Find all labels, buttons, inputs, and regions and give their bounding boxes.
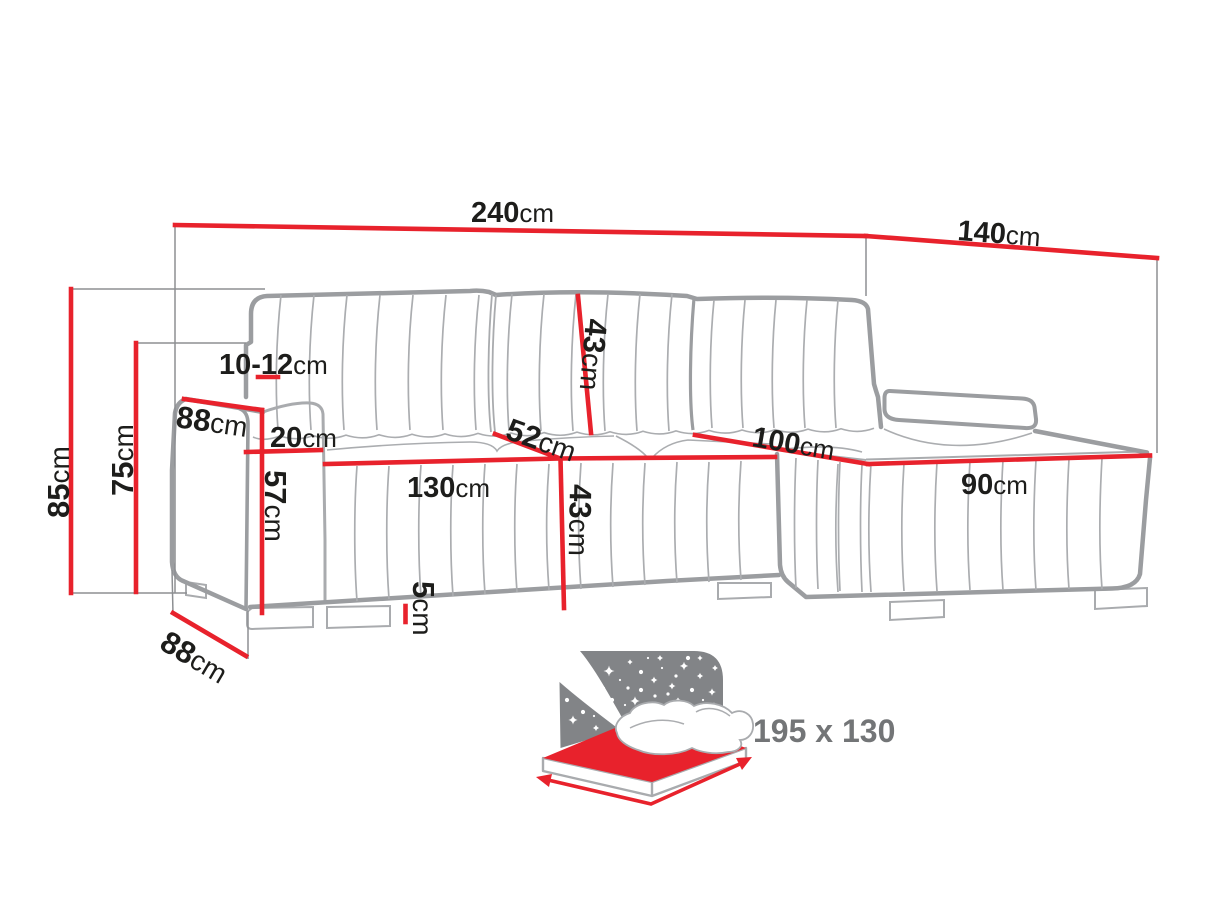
svg-text:43cm: 43cm xyxy=(573,317,614,392)
svg-text:85cm: 85cm xyxy=(41,446,76,518)
svg-text:57cm: 57cm xyxy=(258,470,293,542)
svg-text:10-12cm: 10-12cm xyxy=(219,349,328,381)
svg-text:195 x 130: 195 x 130 xyxy=(753,713,895,749)
svg-text:100cm: 100cm xyxy=(750,421,837,466)
svg-text:43cm: 43cm xyxy=(562,484,598,556)
svg-text:90cm: 90cm xyxy=(961,469,1028,501)
svg-text:75cm: 75cm xyxy=(105,424,140,496)
svg-text:88cm: 88cm xyxy=(154,624,234,691)
svg-text:20cm: 20cm xyxy=(270,422,337,454)
svg-text:240cm: 240cm xyxy=(471,197,554,229)
svg-text:130cm: 130cm xyxy=(407,472,490,504)
svg-text:5cm: 5cm xyxy=(406,581,441,636)
svg-text:140cm: 140cm xyxy=(956,215,1041,253)
